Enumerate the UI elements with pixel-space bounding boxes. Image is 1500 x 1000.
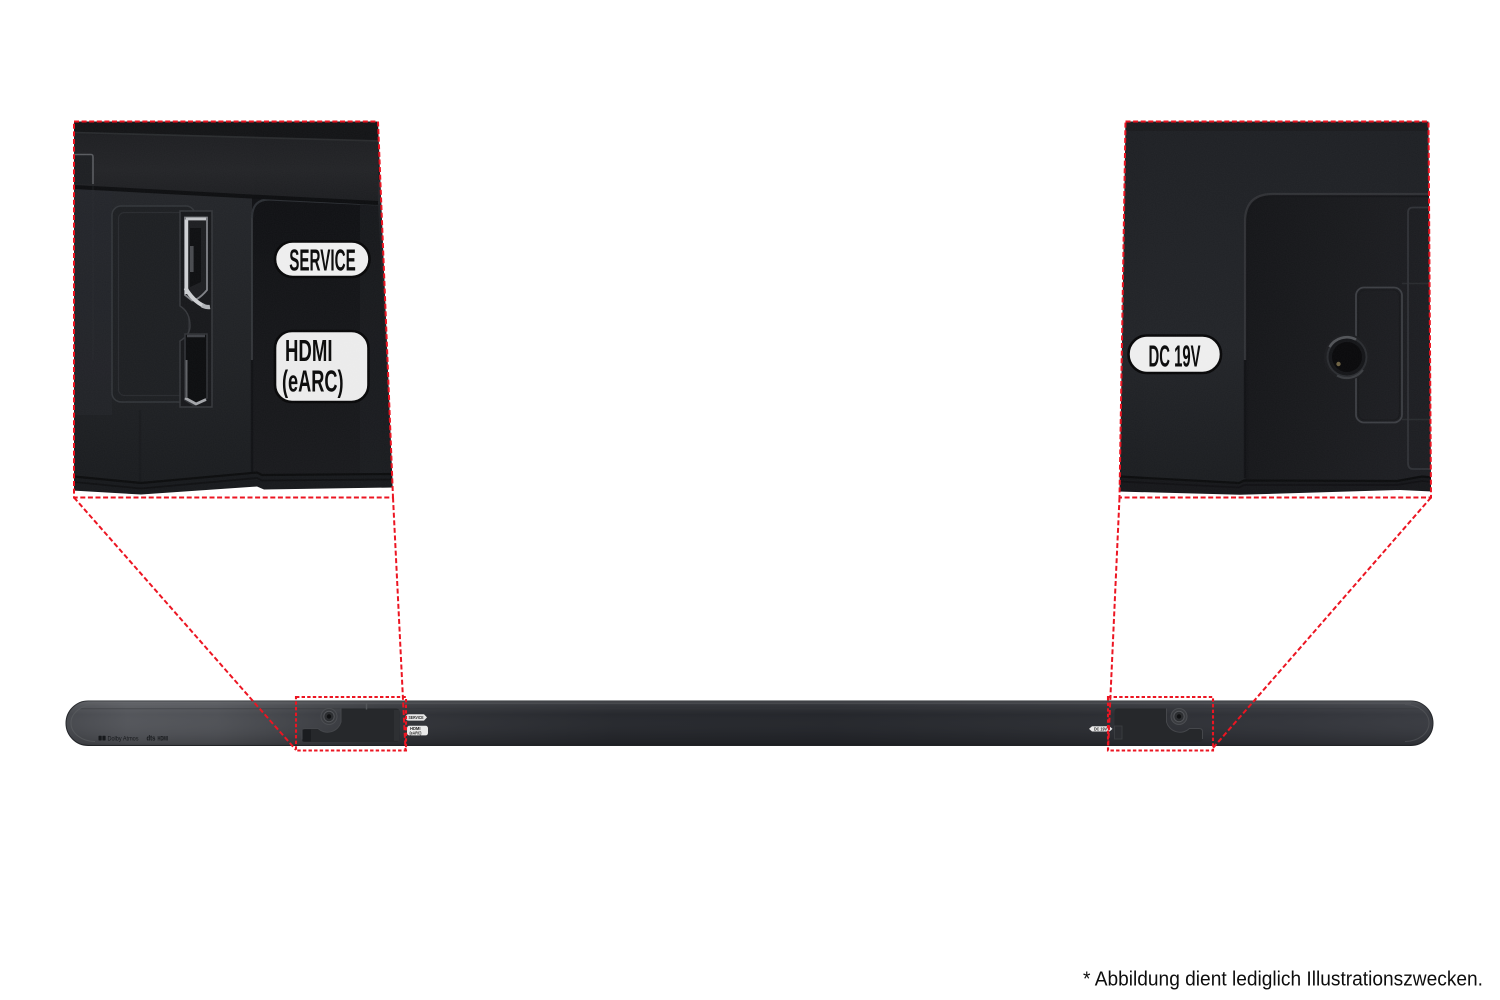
svg-text:Dolby Atmos: Dolby Atmos bbox=[108, 736, 140, 743]
svg-text:(eARC): (eARC) bbox=[410, 730, 422, 735]
svg-text:dts: dts bbox=[147, 734, 156, 743]
svg-text:SERVICE: SERVICE bbox=[409, 715, 424, 720]
svg-text:* Abbildung dient lediglich Il: * Abbildung dient lediglich Illustration… bbox=[1083, 968, 1483, 991]
svg-text:HDMI: HDMI bbox=[158, 736, 169, 743]
svg-text:DC 19V: DC 19V bbox=[1094, 726, 1107, 731]
